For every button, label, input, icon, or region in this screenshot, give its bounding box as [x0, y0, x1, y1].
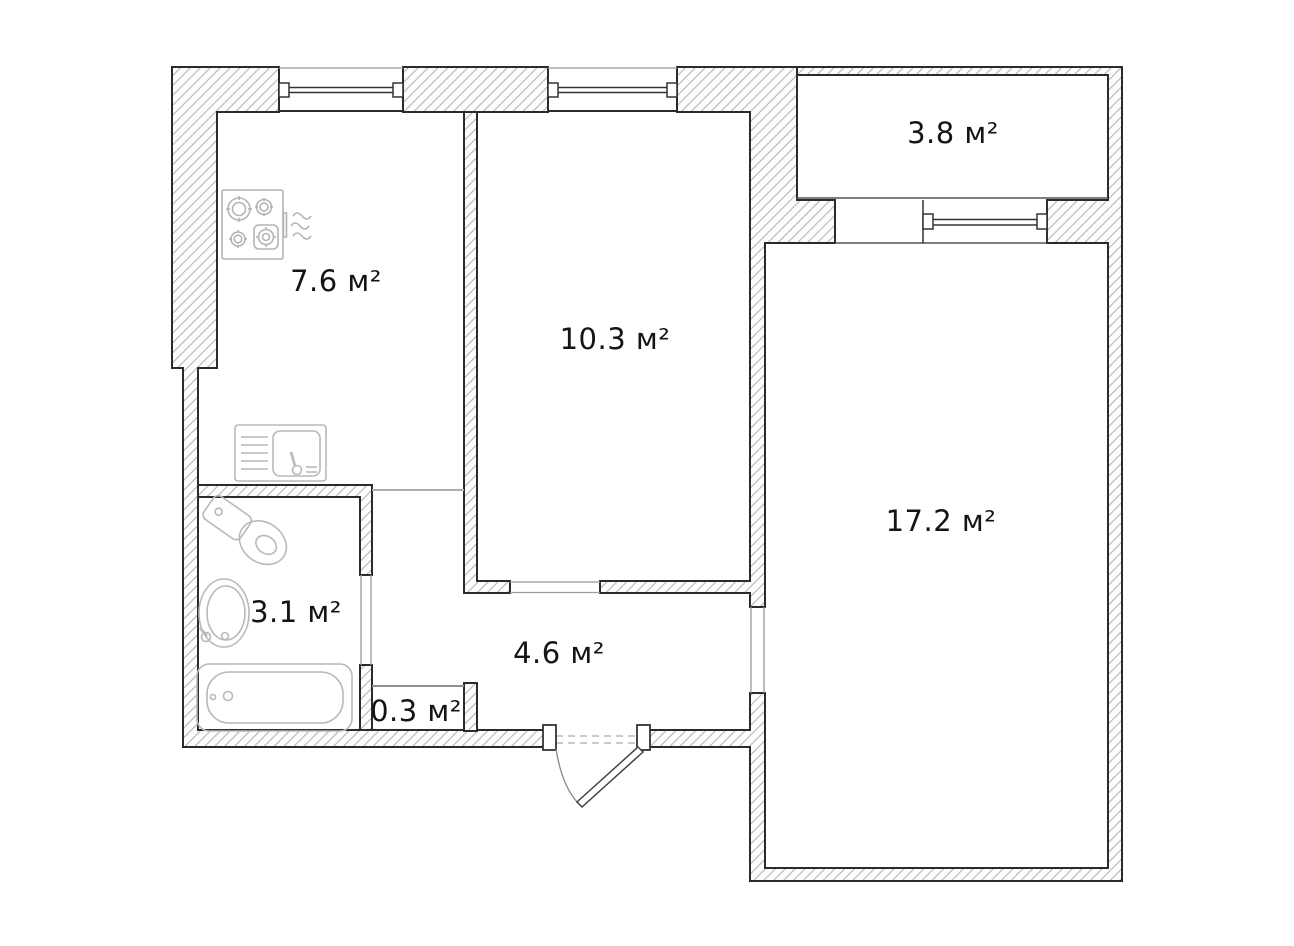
vent-waves-icon [291, 213, 311, 239]
floor-plan-drawing [0, 0, 1294, 946]
window-icon-kitchen [279, 83, 403, 97]
wall-kitchen-bedroom [464, 112, 510, 593]
window-icon-bedroom [548, 83, 677, 97]
wall-right-perimeter [649, 67, 1122, 881]
room-label-living-room: 17.2 м² [886, 504, 997, 538]
wall-left-bottom [172, 67, 545, 747]
bathtub-icon [197, 664, 352, 731]
zone-lines [279, 68, 1108, 693]
wall-storage-right [464, 683, 477, 731]
room-label-bathroom: 3.1 м² [250, 595, 342, 629]
room-label-kitchen: 7.6 м² [290, 264, 382, 298]
room-label-balcony: 3.8 м² [907, 116, 999, 150]
window-icon-living-room [923, 214, 1047, 229]
room-label-storage: 0.3 м² [370, 694, 462, 728]
washbasin-icon [199, 579, 249, 647]
room-label-hallway: 4.6 м² [513, 636, 605, 670]
kitchen-sink-icon [235, 425, 326, 481]
room-label-bedroom: 10.3 м² [560, 322, 671, 356]
entrance-door-icon [543, 725, 650, 807]
wall-top-middle [403, 67, 548, 112]
toilet-icon [197, 488, 294, 573]
stove-icon [222, 190, 287, 259]
walls [172, 67, 1122, 881]
floor-plan: 7.6 м² 10.3 м² 3.8 м² 17.2 м² 3.1 м² 4.6… [0, 0, 1294, 946]
